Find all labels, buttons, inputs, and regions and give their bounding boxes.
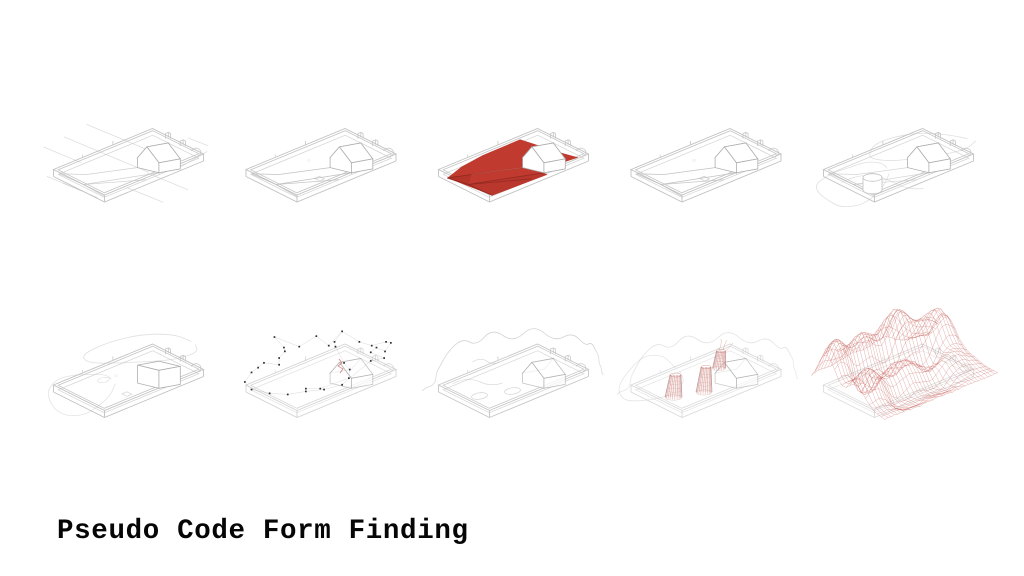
- svg-text:33: 33: [307, 158, 311, 162]
- svg-text:33: 33: [692, 158, 696, 162]
- svg-text:33: 33: [114, 374, 118, 378]
